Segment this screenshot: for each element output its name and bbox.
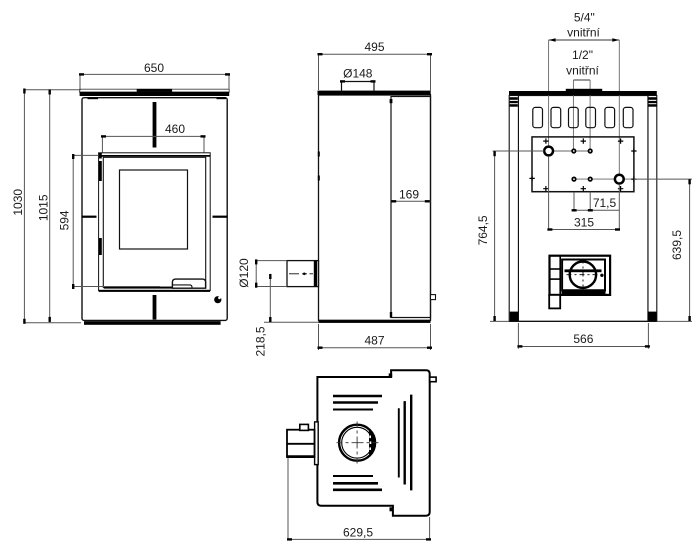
svg-text:1030: 1030 [11,189,25,216]
svg-text:Ø148: Ø148 [343,67,373,81]
svg-text:1015: 1015 [36,194,50,221]
svg-text:71,5: 71,5 [593,196,617,210]
svg-text:1/2": 1/2" [572,48,593,62]
svg-text:vnitřní: vnitřní [567,26,600,40]
svg-text:487: 487 [364,334,384,348]
svg-text:639,5: 639,5 [670,230,684,260]
svg-text:5/4": 5/4" [574,11,595,25]
svg-text:vnitřní: vnitřní [566,64,599,78]
svg-text:Ø120: Ø120 [237,258,251,288]
svg-text:315: 315 [574,215,594,229]
svg-text:566: 566 [573,332,593,346]
svg-text:460: 460 [165,122,185,136]
svg-text:650: 650 [144,61,164,75]
svg-text:495: 495 [364,40,384,54]
svg-text:218,5: 218,5 [254,326,268,356]
svg-text:629,5: 629,5 [343,526,373,540]
svg-text:594: 594 [58,210,72,230]
svg-text:764,5: 764,5 [476,215,490,245]
svg-text:169: 169 [399,187,419,201]
